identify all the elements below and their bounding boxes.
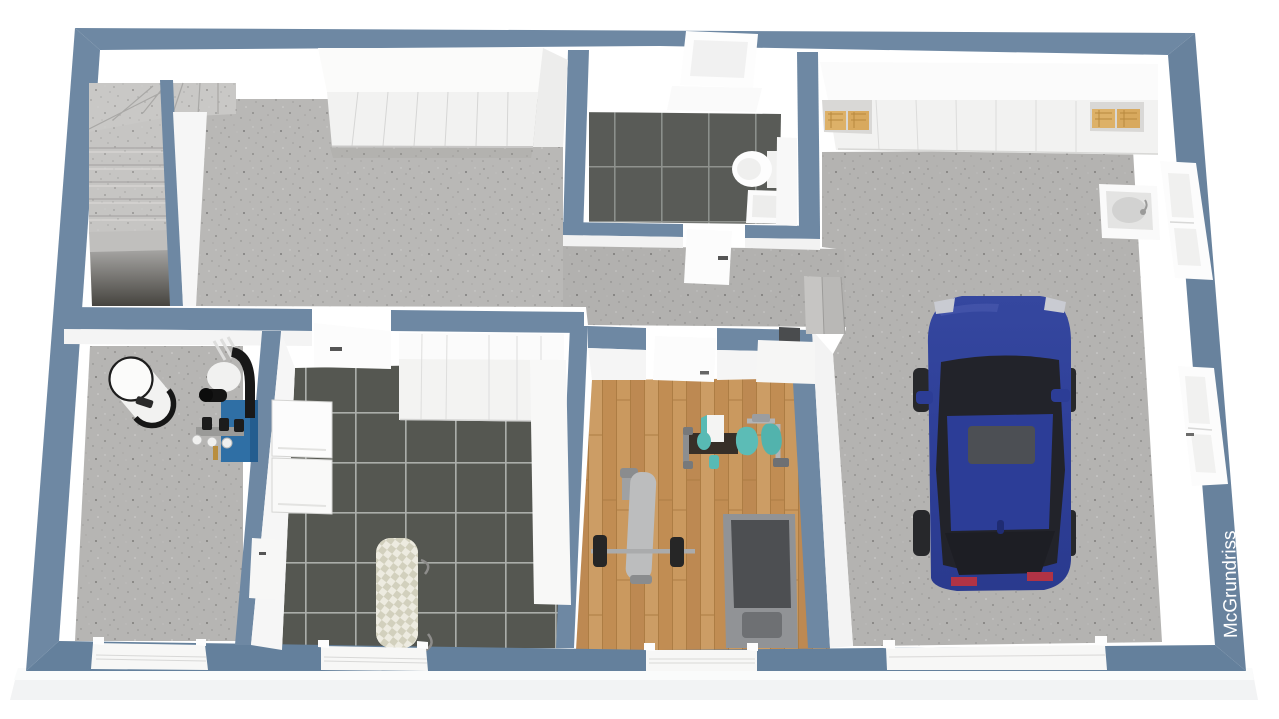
svg-text:McGrundriss: McGrundriss: [1219, 530, 1242, 638]
